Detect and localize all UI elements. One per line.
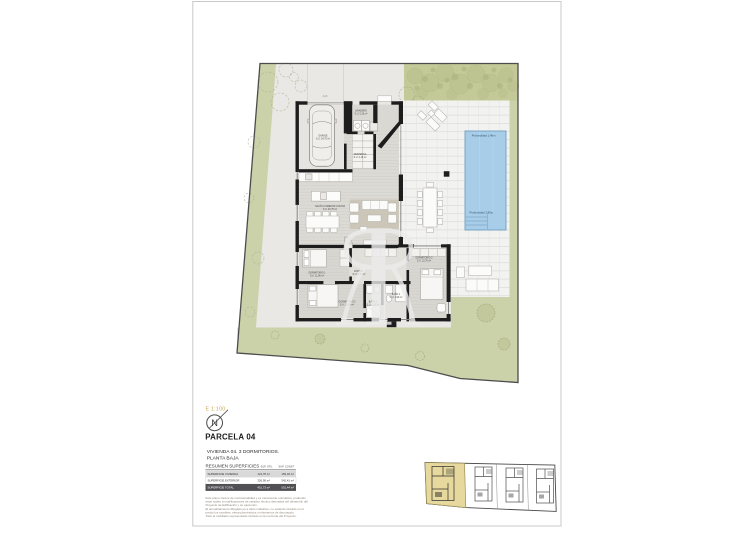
svg-text:S.U. 40,75 m²: S.U. 40,75 m² (323, 208, 337, 211)
svg-text:S.U. 4,10 m²: S.U. 4,10 m² (354, 156, 367, 159)
svg-text:SUPERFICIE TOTAL: SUPERFICIE TOTAL (208, 486, 235, 490)
svg-text:SUPERFICIE VIVIENDA: SUPERFICIE VIVIENDA (208, 472, 239, 476)
svg-text:S.U. 11,98 m²: S.U. 11,98 m² (310, 275, 324, 278)
svg-text:Profundidad 1,40m: Profundidad 1,40m (472, 133, 496, 137)
svg-text:LAVADERO: LAVADERO (355, 110, 367, 113)
svg-text:501,44 m²: 501,44 m² (281, 486, 294, 490)
svg-text:326,95 m²: 326,95 m² (257, 479, 270, 483)
svg-text:GARAJE: GARAJE (318, 135, 328, 138)
svg-text:VIVIENDA 04. 3 DORMITORIOS.: VIVIENDA 04. 3 DORMITORIOS. (207, 449, 279, 455)
svg-text:E 1:100: E 1:100 (206, 407, 226, 413)
svg-text:RESUMEN SUPERFICIES: RESUMEN SUPERFICIES (206, 464, 260, 469)
svg-text:S.U. 5,20 m²: S.U. 5,20 m² (355, 113, 368, 116)
svg-text:N: N (211, 418, 218, 428)
svg-text:S.U. 4,90 m²: S.U. 4,90 m² (390, 296, 403, 299)
svg-text:124,78 m²: 124,78 m² (257, 472, 270, 476)
svg-text:4,20: 4,20 (323, 95, 328, 98)
svg-text:Profundidad 1,80m: Profundidad 1,80m (469, 211, 493, 215)
svg-text:BAÑO 1: BAÑO 1 (392, 293, 401, 296)
svg-text:DESPENSA: DESPENSA (354, 153, 367, 156)
svg-text:SUPERFICIE EXTERIOR: SUPERFICIE EXTERIOR (208, 479, 240, 483)
svg-text:S.U. 12,70 m²: S.U. 12,70 m² (417, 260, 431, 263)
svg-text:DORMITORIO 3: DORMITORIO 3 (416, 258, 434, 260)
svg-text:159,03 m²: 159,03 m² (281, 472, 294, 476)
svg-text:342,41 m²: 342,41 m² (281, 479, 294, 483)
svg-text:PARCELA 04: PARCELA 04 (205, 433, 256, 442)
svg-text:Todo el mobiliario representad: Todo el mobiliario representado incluido… (206, 514, 297, 518)
svg-text:DORMITORIO 1: DORMITORIO 1 (309, 273, 327, 275)
svg-text:451,73 m²: 451,73 m² (257, 486, 270, 490)
svg-text:SUP. CONST: SUP. CONST (279, 464, 295, 468)
svg-text:PLANTA BAJA: PLANTA BAJA (207, 455, 240, 461)
svg-text:SALÓN COMEDOR COCINA: SALÓN COMEDOR COCINA (315, 205, 345, 208)
svg-text:S.U. 24,70 m²: S.U. 24,70 m² (316, 138, 330, 141)
